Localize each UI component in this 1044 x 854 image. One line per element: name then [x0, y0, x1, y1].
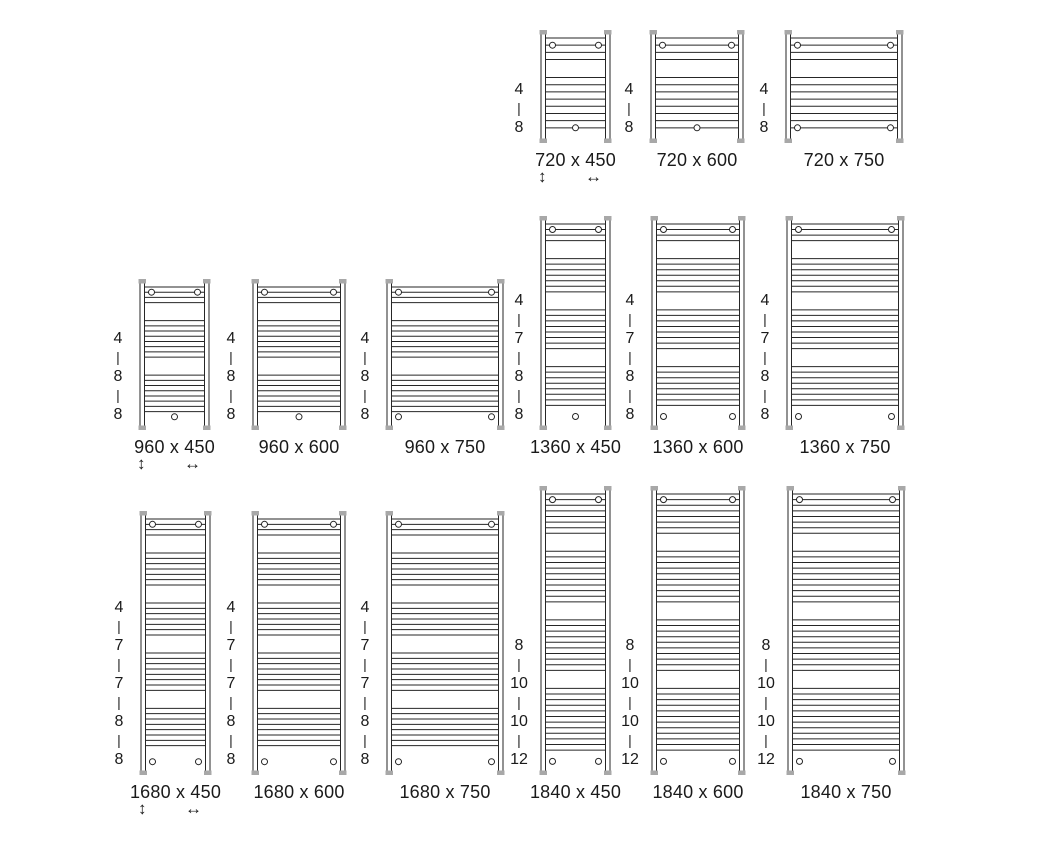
- bar-count-column: 4|7|8|8: [615, 291, 645, 424]
- bar-count: 8: [216, 750, 246, 769]
- bar-count-column: 4|7|7|8|8: [216, 598, 246, 769]
- bar-count: 7: [216, 674, 246, 693]
- bar-count: 7: [216, 636, 246, 655]
- bar-count-column: 4|7|7|8|8: [104, 598, 134, 769]
- bar-count-separator: |: [350, 386, 380, 405]
- bar-count-separator: |: [504, 655, 534, 674]
- bar-count: 4: [103, 329, 133, 348]
- radiator-drawing: [649, 485, 747, 776]
- radiator-drawing: [649, 215, 747, 431]
- bar-count: 8: [103, 367, 133, 386]
- width-arrow-icon: ↔: [184, 455, 201, 473]
- radiator-drawing: [538, 485, 613, 776]
- bar-count-separator: |: [350, 693, 380, 712]
- radiator-drawing: [538, 215, 613, 431]
- bar-count: 10: [615, 712, 645, 731]
- bar-count: 8: [750, 367, 780, 386]
- bar-count: 8: [615, 367, 645, 386]
- bar-count-separator: |: [504, 693, 534, 712]
- bar-count: 8: [504, 405, 534, 424]
- bar-count-separator: |: [615, 655, 645, 674]
- bar-count: 8: [749, 118, 779, 137]
- bar-count-separator: |: [751, 655, 781, 674]
- bar-count-column: 4|8: [749, 80, 779, 137]
- bar-count-separator: |: [615, 731, 645, 750]
- radiator-drawing: [784, 215, 906, 431]
- bar-count-separator: |: [104, 693, 134, 712]
- bar-count: 4: [749, 80, 779, 99]
- bar-count-separator: |: [504, 731, 534, 750]
- bar-count-separator: |: [216, 348, 246, 367]
- bar-count-separator: |: [751, 731, 781, 750]
- bar-count-separator: |: [350, 617, 380, 636]
- bar-count-separator: |: [350, 731, 380, 750]
- bar-count-separator: |: [216, 731, 246, 750]
- bar-count-separator: |: [504, 99, 534, 118]
- bar-count-separator: |: [103, 386, 133, 405]
- size-label: 1840 x 750: [742, 782, 950, 802]
- bar-count-separator: |: [750, 310, 780, 329]
- bar-count-separator: |: [504, 386, 534, 405]
- bar-count-separator: |: [104, 655, 134, 674]
- bar-count: 8: [751, 636, 781, 655]
- bar-count-separator: |: [350, 655, 380, 674]
- bar-count: 4: [750, 291, 780, 310]
- bar-count-column: 4|7|8|8: [504, 291, 534, 424]
- bar-count: 7: [615, 329, 645, 348]
- bar-count: 10: [504, 712, 534, 731]
- bar-count: 8: [504, 118, 534, 137]
- radiator-drawing: [138, 510, 213, 776]
- bar-count-separator: |: [615, 386, 645, 405]
- bar-count: 7: [750, 329, 780, 348]
- bar-count: 10: [751, 712, 781, 731]
- bar-count-separator: |: [749, 99, 779, 118]
- bar-count-column: 8|10|10|12: [504, 636, 534, 769]
- bar-count: 7: [104, 636, 134, 655]
- bar-count: 4: [104, 598, 134, 617]
- size-label: 720 x 750: [740, 150, 948, 170]
- bar-count: 12: [504, 750, 534, 769]
- bar-count-separator: |: [614, 99, 644, 118]
- bar-count: 8: [614, 118, 644, 137]
- height-arrow-icon: ↕: [138, 800, 147, 818]
- bar-count: 12: [751, 750, 781, 769]
- radiator-drawing: [783, 29, 905, 144]
- bar-count: 4: [504, 291, 534, 310]
- bar-count: 10: [615, 674, 645, 693]
- radiator-drawing: [250, 278, 348, 431]
- bar-count-separator: |: [216, 386, 246, 405]
- bar-count-column: 4|8: [614, 80, 644, 137]
- bar-count-separator: |: [504, 348, 534, 367]
- bar-count-separator: |: [216, 617, 246, 636]
- radiator-drawing: [648, 29, 746, 144]
- radiator-drawing: [538, 29, 613, 144]
- radiator-drawing: [785, 485, 907, 776]
- bar-count: 8: [216, 712, 246, 731]
- bar-count: 7: [504, 329, 534, 348]
- bar-count-separator: |: [216, 655, 246, 674]
- bar-count: 8: [615, 636, 645, 655]
- bar-count-column: 8|10|10|12: [615, 636, 645, 769]
- radiator-drawing: [137, 278, 212, 431]
- bar-count: 7: [104, 674, 134, 693]
- bar-count-separator: |: [216, 693, 246, 712]
- height-arrow-icon: ↕: [538, 168, 547, 186]
- bar-count-separator: |: [350, 348, 380, 367]
- bar-count-separator: |: [104, 731, 134, 750]
- height-arrow-icon: ↕: [137, 455, 146, 473]
- radiator-drawing: [250, 510, 348, 776]
- bar-count: 8: [216, 367, 246, 386]
- bar-count: 4: [350, 329, 380, 348]
- bar-count-column: 4|8|8: [216, 329, 246, 424]
- radiator-drawing: [384, 278, 506, 431]
- bar-count: 8: [350, 367, 380, 386]
- bar-count-separator: |: [750, 386, 780, 405]
- bar-count: 4: [615, 291, 645, 310]
- bar-count: 4: [216, 329, 246, 348]
- bar-count: 8: [216, 405, 246, 424]
- bar-count: 8: [750, 405, 780, 424]
- bar-count: 8: [504, 636, 534, 655]
- bar-count-column: 4|7|7|8|8: [350, 598, 380, 769]
- bar-count-column: 4|7|8|8: [750, 291, 780, 424]
- bar-count-separator: |: [751, 693, 781, 712]
- bar-count: 7: [350, 674, 380, 693]
- bar-count-separator: |: [504, 310, 534, 329]
- bar-count: 12: [615, 750, 645, 769]
- width-arrow-icon: ↔: [585, 168, 602, 186]
- bar-count: 4: [350, 598, 380, 617]
- size-diagram-canvas: 4|8720 x 450↕↔4|8720 x 6004|8720 x 7504|…: [0, 0, 1044, 854]
- bar-count-separator: |: [103, 348, 133, 367]
- bar-count: 8: [104, 712, 134, 731]
- bar-count: 8: [350, 405, 380, 424]
- radiator-drawing: [384, 510, 506, 776]
- bar-count-column: 8|10|10|12: [751, 636, 781, 769]
- bar-count: 4: [216, 598, 246, 617]
- bar-count: 10: [751, 674, 781, 693]
- bar-count: 8: [350, 712, 380, 731]
- bar-count: 8: [615, 405, 645, 424]
- bar-count: 8: [350, 750, 380, 769]
- bar-count-separator: |: [104, 617, 134, 636]
- bar-count-column: 4|8|8: [103, 329, 133, 424]
- width-arrow-icon: ↔: [185, 800, 202, 818]
- bar-count-separator: |: [615, 310, 645, 329]
- bar-count-separator: |: [615, 693, 645, 712]
- bar-count: 4: [504, 80, 534, 99]
- bar-count: 8: [504, 367, 534, 386]
- bar-count-separator: |: [750, 348, 780, 367]
- bar-count-column: 4|8|8: [350, 329, 380, 424]
- bar-count: 8: [103, 405, 133, 424]
- bar-count-separator: |: [615, 348, 645, 367]
- size-label: 1360 x 750: [741, 437, 949, 457]
- bar-count: 10: [504, 674, 534, 693]
- bar-count: 8: [104, 750, 134, 769]
- bar-count-column: 4|8: [504, 80, 534, 137]
- bar-count: 7: [350, 636, 380, 655]
- bar-count: 4: [614, 80, 644, 99]
